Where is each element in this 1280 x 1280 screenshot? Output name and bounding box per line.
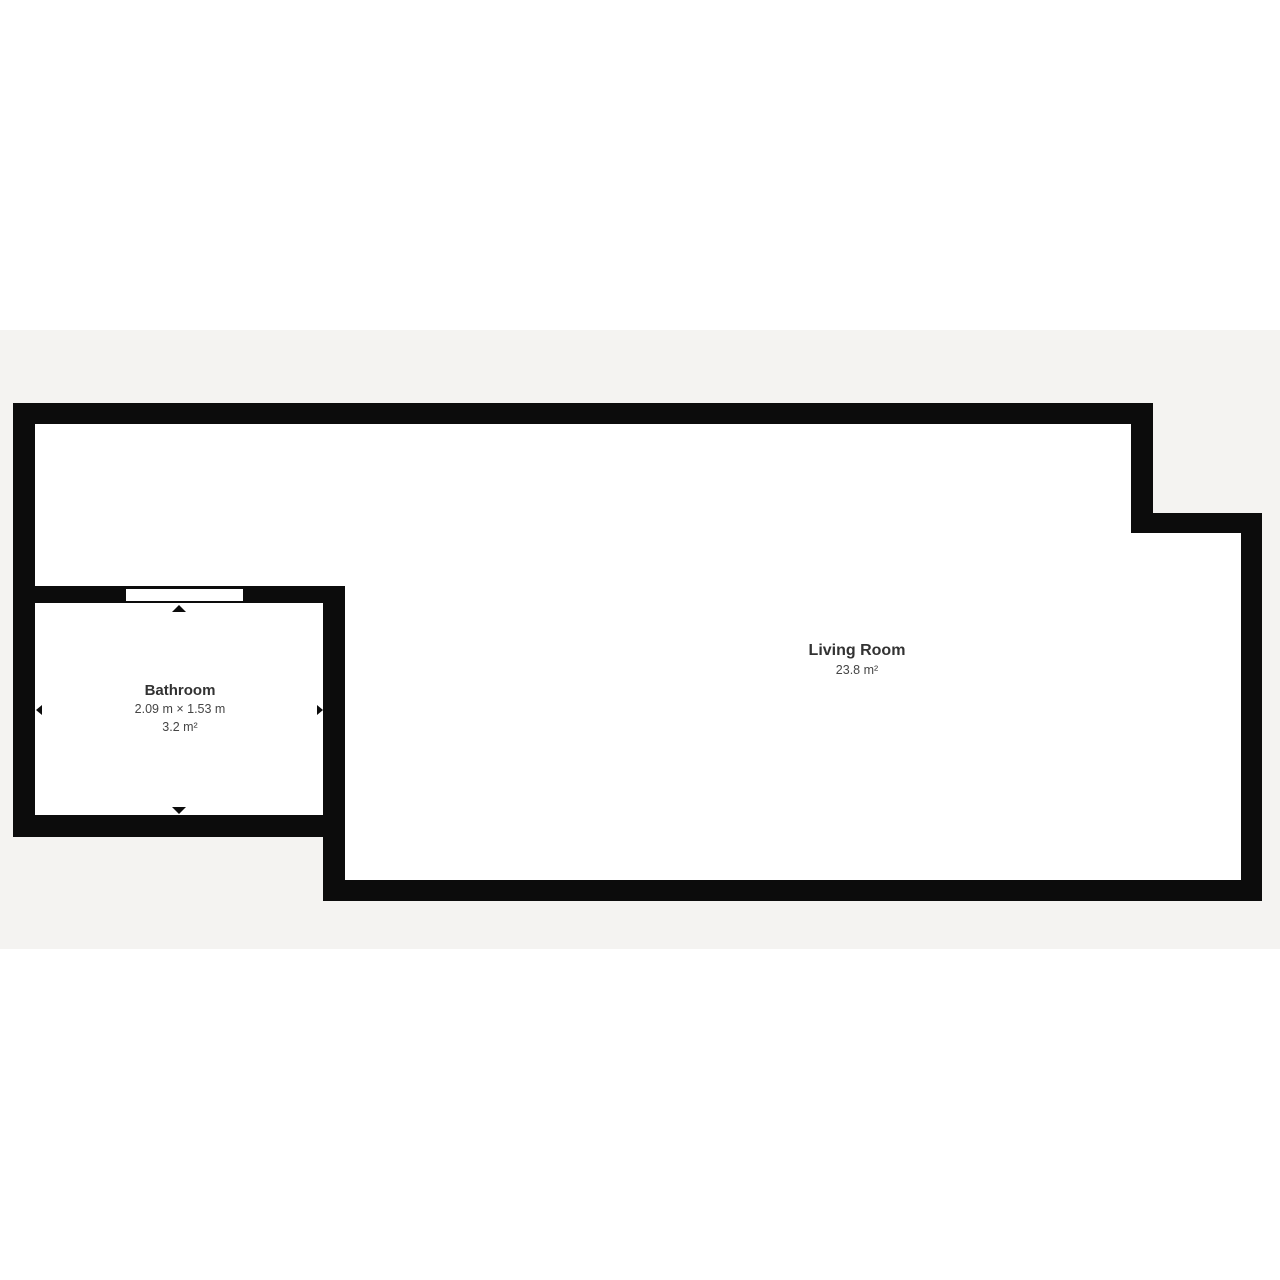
living-room-area: 23.8 m²	[727, 662, 987, 679]
dimension-arrow-left-icon	[36, 705, 42, 715]
wall-bathroom-right	[323, 586, 345, 901]
wall-left	[13, 403, 35, 837]
living-room-floor-upper	[35, 424, 1131, 586]
bathroom-label: Bathroom 2.09 m × 1.53 m 3.2 m²	[50, 681, 310, 736]
living-room-label: Living Room 23.8 m²	[727, 641, 987, 679]
wall-bottom	[323, 880, 1262, 901]
living-room-floor-right-nook	[1131, 533, 1241, 880]
wall-bathroom-bottom	[13, 815, 345, 837]
bathroom-area: 3.2 m²	[50, 719, 310, 736]
bathroom-name: Bathroom	[50, 681, 310, 700]
wall-right	[1241, 513, 1262, 901]
living-room-floor-main	[345, 586, 1131, 880]
dimension-arrow-up-icon	[172, 605, 186, 612]
bathroom-dimensions: 2.09 m × 1.53 m	[50, 701, 310, 718]
wall-top	[13, 403, 1153, 424]
floorplan-page: Bathroom 2.09 m × 1.53 m 3.2 m² Living R…	[0, 0, 1280, 1280]
dimension-arrow-right-icon	[317, 705, 323, 715]
window-icon	[124, 587, 245, 603]
living-room-name: Living Room	[727, 641, 987, 661]
dimension-arrow-down-icon	[172, 807, 186, 814]
